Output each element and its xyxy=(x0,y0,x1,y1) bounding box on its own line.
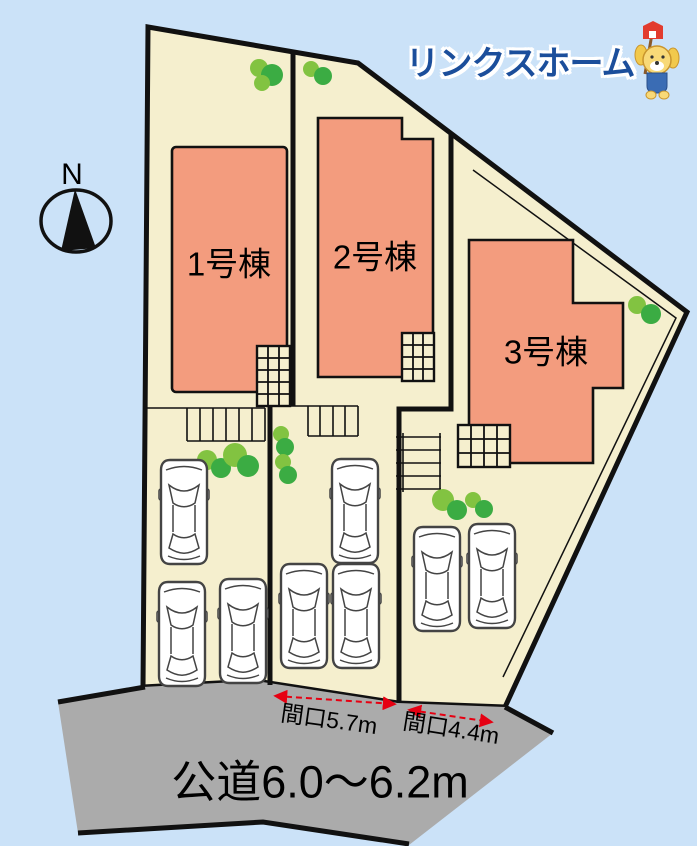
porch-grid-building-2 xyxy=(402,333,434,381)
car-icon xyxy=(330,459,380,563)
car-icon xyxy=(159,460,209,564)
compass-icon xyxy=(41,189,111,252)
building-1-label: 1号棟 xyxy=(187,248,271,281)
porch-grid-building-3 xyxy=(458,425,510,467)
building-2-label: 2号棟 xyxy=(333,241,417,274)
car-icon xyxy=(279,564,329,668)
compass-north-label: N xyxy=(61,160,83,190)
logo-text: リンクスホーム xyxy=(406,47,635,81)
car-icon xyxy=(218,579,268,683)
site-plan-page: リンクスホーム N 1号棟 2号棟 3号棟 間口5.7m 間口4.4m 公道6.… xyxy=(0,0,697,846)
car-icon xyxy=(412,527,462,631)
porch-grid-building-1 xyxy=(257,346,290,406)
road-label: 公道6.0〜6.2m xyxy=(171,760,469,805)
mascot-puppy-icon xyxy=(635,21,679,99)
car-icon xyxy=(331,564,381,668)
car-icon xyxy=(467,524,517,628)
building-3-label: 3号棟 xyxy=(504,336,588,369)
car-icon xyxy=(157,582,207,686)
